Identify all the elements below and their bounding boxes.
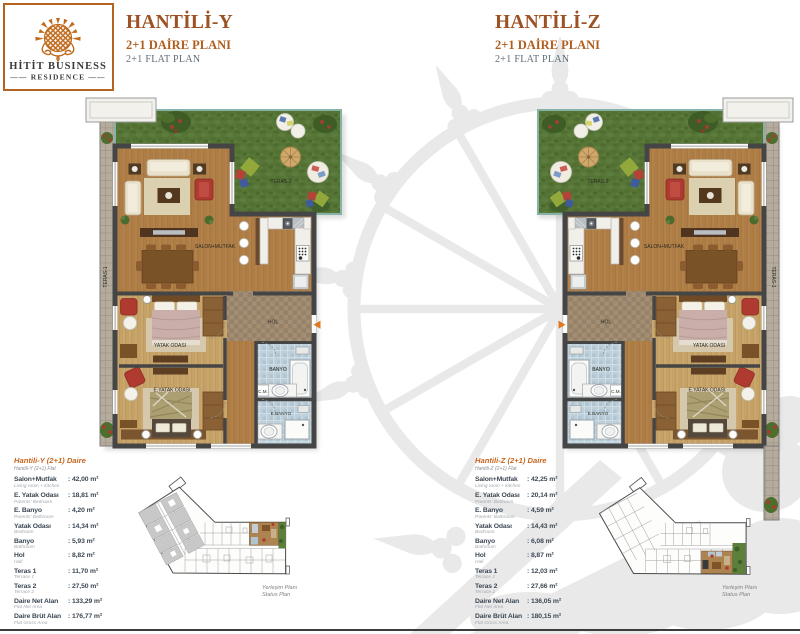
svg-text:TERAS-2: TERAS-2 <box>270 179 291 185</box>
svg-text:BANYO: BANYO <box>269 367 287 373</box>
svg-text:E.BANYO: E.BANYO <box>588 411 609 416</box>
svg-text:SALON+MUTFAK: SALON+MUTFAK <box>195 244 236 250</box>
svg-text:E.YATAK ODASI: E.YATAK ODASI <box>154 388 191 394</box>
svg-text:SALON+MUTFAK: SALON+MUTFAK <box>644 244 685 250</box>
svg-text:E.BANYO: E.BANYO <box>271 411 292 416</box>
svg-text:HİTİT BUSINESS: HİTİT BUSINESS <box>9 60 107 72</box>
svg-text:HOL: HOL <box>268 320 279 326</box>
svg-text:TERAS-1: TERAS-1 <box>770 266 776 287</box>
svg-text:TERAS-2: TERAS-2 <box>587 179 608 185</box>
svg-text:E.YATAK ODASI: E.YATAK ODASI <box>689 388 726 394</box>
svg-text:HOL: HOL <box>601 320 612 326</box>
svg-text:C.M.: C.M. <box>611 389 621 394</box>
svg-text:TERAS-1: TERAS-1 <box>103 266 109 287</box>
svg-text:—— RESIDENCE ——: —— RESIDENCE —— <box>9 73 106 82</box>
svg-text:YATAK ODASI: YATAK ODASI <box>154 343 186 349</box>
svg-text:YATAK ODASI: YATAK ODASI <box>693 343 725 349</box>
svg-text:BANYO: BANYO <box>592 367 610 373</box>
svg-text:C.M.: C.M. <box>258 389 268 394</box>
